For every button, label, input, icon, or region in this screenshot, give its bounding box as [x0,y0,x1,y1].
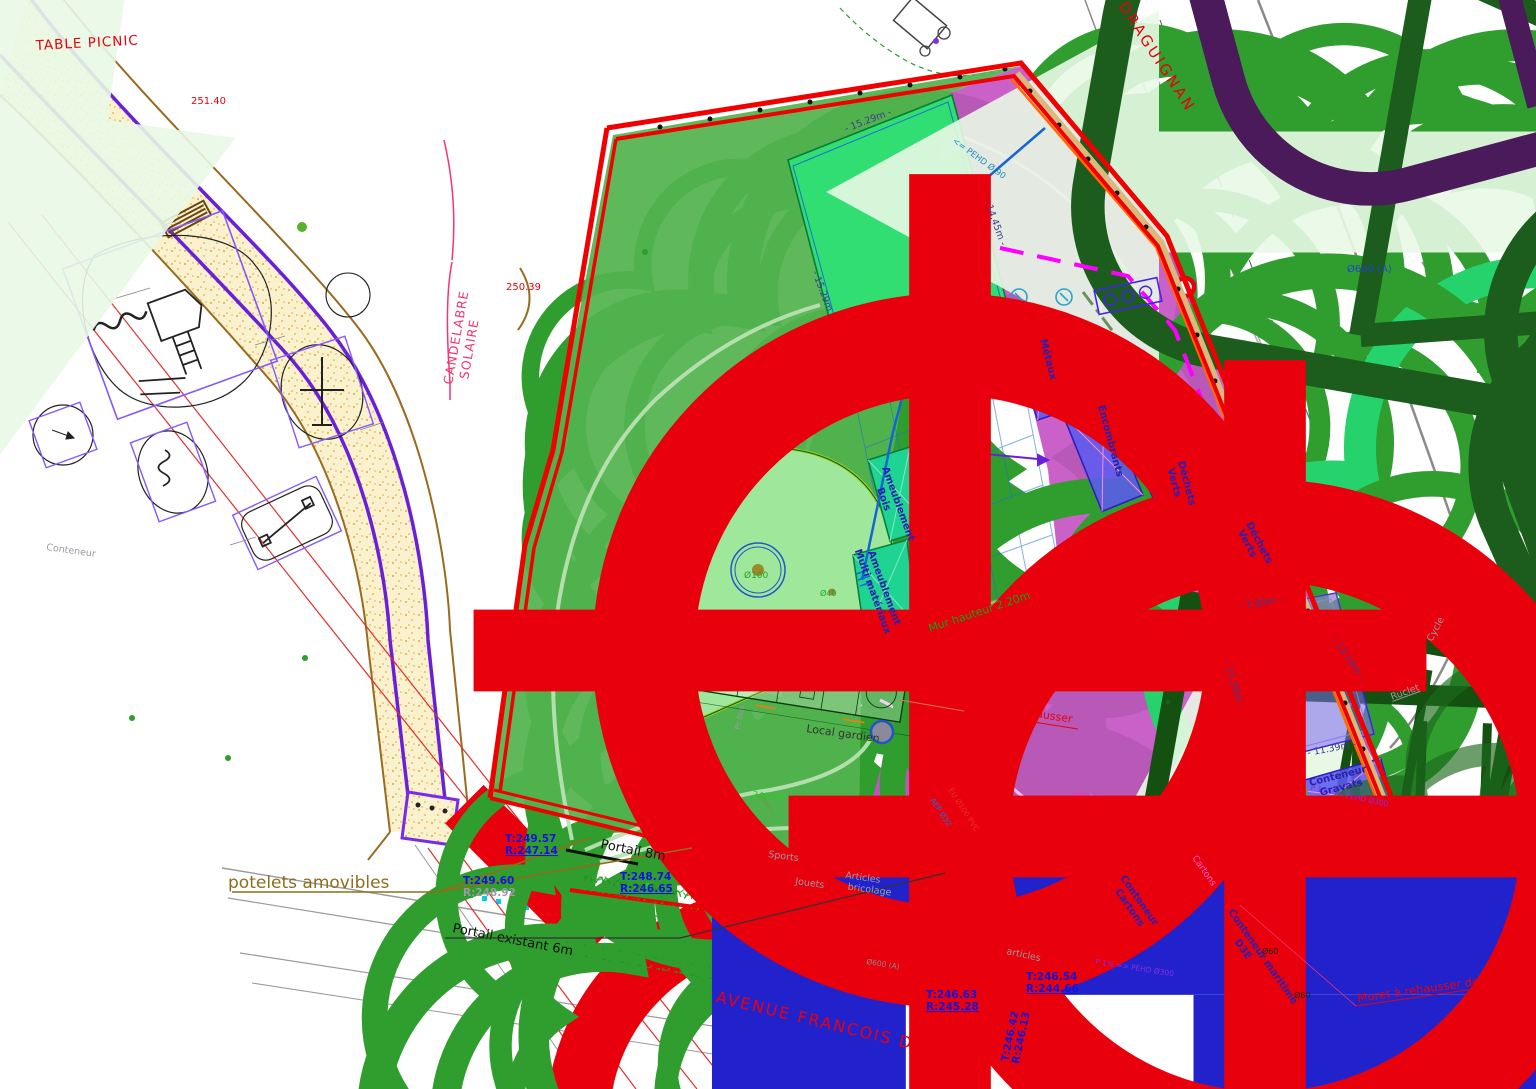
pipe-600-top-label: Ø600 (A) [1347,263,1392,275]
tr1-r: R:247.14 [505,845,558,857]
tree-o100-label: Ø100 [744,570,769,581]
site-plan-canvas: TABLE PICNIC 251.40 250.39 DRAGUIGNAN CA… [0,0,1536,1089]
utility-structure [894,0,950,56]
tr4-r: R:245.28 [926,1001,979,1013]
tr1-t: T:249.57 [505,833,556,845]
site-plan-drawing: TABLE PICNIC 251.40 250.39 DRAGUIGNAN CA… [0,0,1536,1089]
tree-o40-label: Ø40 [820,588,836,598]
o60b-label: Ø60 [1294,990,1310,1000]
potelets-label: potelets amovibles [228,873,390,893]
elevation-251: 251.40 [191,96,226,107]
tr3-t: T:248.74 [620,871,671,883]
elevation-250: 250.39 [506,282,541,293]
tr3-r: R:246.65 [620,883,673,895]
tr2-r: R:248.92 [463,887,516,899]
conteneur-label: Conteneur [46,542,97,560]
tr5-t: T:246.54 [1026,971,1077,983]
o60a-label: Ø60 [1262,946,1278,956]
tr5-r: R:244.66 [1026,983,1079,995]
tr2-t: T:249.60 [463,875,514,887]
tr4-t: T:246.63 [926,989,977,1001]
